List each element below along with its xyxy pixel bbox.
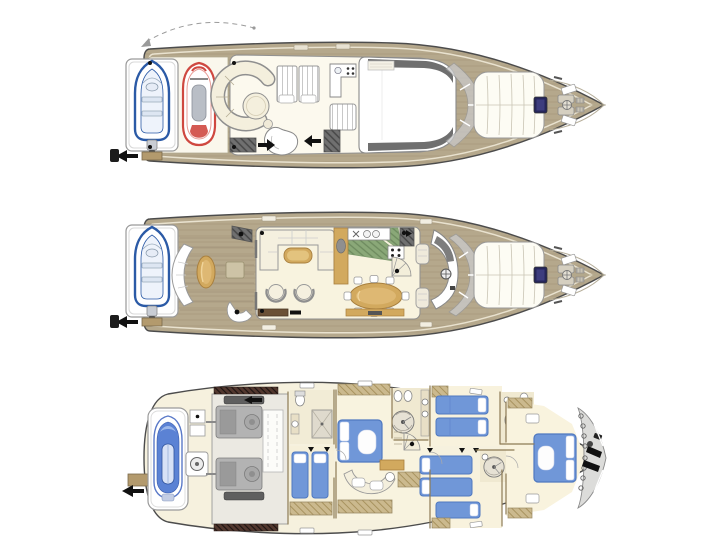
deck-fitting — [232, 61, 236, 65]
sink — [422, 411, 428, 417]
deck-hatch — [262, 325, 276, 330]
wardrobe — [508, 398, 532, 408]
twin-cabin-starboard — [432, 386, 502, 446]
sink — [292, 421, 298, 427]
round-shower — [392, 411, 414, 433]
deck-fitting — [232, 145, 236, 149]
deck-fitting — [260, 309, 264, 313]
vent-grille — [214, 387, 278, 394]
wardrobe — [432, 386, 448, 397]
engine-room — [206, 387, 288, 531]
master-bed — [338, 420, 382, 462]
dining-table — [350, 283, 402, 309]
wardrobe — [338, 500, 392, 513]
vip-bed — [534, 434, 576, 482]
master-cabin — [336, 384, 432, 520]
deck-hatch — [420, 322, 432, 327]
sun-bench — [330, 104, 356, 130]
deck-fitting — [402, 231, 406, 235]
sink — [364, 231, 371, 238]
vent-grille — [214, 524, 278, 531]
bench-seat — [526, 494, 539, 503]
jet-ski-icon — [183, 63, 215, 145]
roof-hatch — [336, 44, 350, 49]
deck-fitting — [148, 145, 152, 149]
deck-hatch — [262, 216, 276, 221]
twin-bed — [436, 418, 488, 436]
deck-fitting — [260, 231, 264, 235]
deck-fitting — [148, 61, 152, 65]
round-shower — [484, 457, 504, 477]
sink — [422, 399, 428, 405]
toilet — [394, 391, 402, 402]
garage-jet-ski — [148, 408, 188, 510]
vanity-stool — [386, 473, 395, 482]
wardrobe — [290, 502, 332, 515]
coffee-table — [284, 248, 312, 263]
deck-hatch — [420, 219, 432, 224]
wardrobe — [508, 508, 532, 518]
vanity — [380, 460, 404, 470]
bidet — [404, 391, 412, 402]
sideboard-unit — [290, 311, 301, 315]
twin-bed — [436, 396, 488, 414]
storage-lockers — [190, 410, 205, 436]
galley-counter — [334, 228, 348, 284]
cockpit-table — [197, 256, 215, 288]
sink — [482, 454, 488, 460]
cabinet — [398, 472, 420, 487]
sink — [373, 231, 380, 238]
jet-ski-icon — [154, 416, 182, 501]
companionway-stairs — [400, 228, 414, 246]
hardtop-roof — [359, 57, 456, 153]
generator — [186, 452, 208, 476]
crew-cabin — [288, 446, 334, 520]
crew-bathroom — [290, 390, 334, 444]
roof-hatch — [294, 45, 308, 50]
yacht-deck-plans-figure — [0, 0, 728, 546]
service-hatch — [263, 410, 283, 472]
wardrobe — [432, 518, 450, 528]
cockpit-hatch — [226, 262, 244, 278]
deck-plan-canvas — [0, 0, 728, 546]
bench-seat — [526, 414, 539, 423]
twin-bed — [420, 456, 472, 474]
twin-bed — [420, 478, 472, 496]
